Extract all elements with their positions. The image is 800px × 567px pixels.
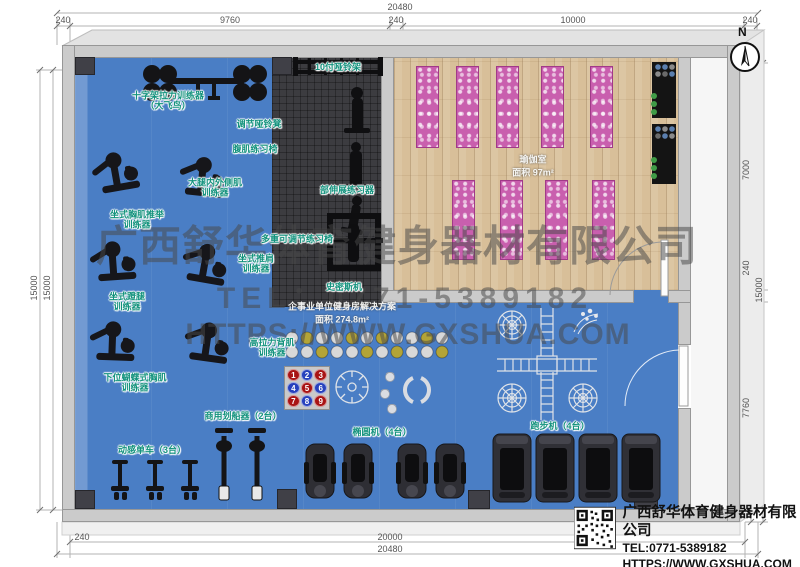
- dim-top-overall: 20480: [387, 2, 412, 12]
- label-lat-pulldown: 高拉力背肌 训练器: [249, 338, 294, 359]
- label-thigh-machine: 大腿内外侧肌 训练器: [188, 178, 242, 199]
- label-cross-cable: 十字架拉力训练器 （大飞鸟）: [132, 91, 204, 112]
- dim-right-overall: 15000: [754, 277, 764, 302]
- title-block: 广西舒华体育健身器材有限公司 TEL:0771-5389182 HTTPS://…: [574, 504, 798, 567]
- ball-4: 4: [287, 382, 300, 394]
- dim-bottom-inner: 20000: [377, 532, 402, 542]
- floor-plan-drawing: 20480 240 9760 240 10000 240 15000 15000…: [0, 0, 800, 567]
- qr-code-icon: [574, 504, 616, 552]
- watermark-company: 广西舒华体育健身器材有限公司: [96, 213, 698, 274]
- label-ab-bench: 腹肌练习椅: [232, 144, 277, 154]
- ball-5: 5: [301, 382, 314, 394]
- footer-company: 广西舒华体育健身器材有限公司: [623, 504, 799, 540]
- label-leg-press: 坐式蹬腿 训练器: [109, 292, 145, 313]
- yoga-mat: [416, 66, 439, 148]
- wall-left: [62, 45, 75, 522]
- column: [277, 489, 297, 509]
- column: [272, 57, 292, 75]
- dim-top-seg-3: 10000: [560, 15, 585, 25]
- ball-rack: 123456789: [284, 366, 330, 410]
- label-ellipticals: 椭圆机（4台）: [352, 427, 411, 437]
- column: [75, 57, 95, 75]
- plan-title-label: 企事业单位健身房解决方案 面积 274.8m²: [288, 300, 396, 325]
- label-chest-press: 坐式胸肌推举 训练器: [110, 210, 164, 231]
- ball-8: 8: [301, 395, 314, 407]
- dim-right-seg-0: 7000: [741, 160, 751, 180]
- ball-6: 6: [314, 382, 327, 394]
- label-adj-bench: 调节哑铃凳: [236, 119, 281, 129]
- label-shoulder-press: 坐式推肩 训练器: [238, 254, 274, 275]
- north-arrow-icon: [730, 42, 760, 72]
- wall-right-outer: [727, 45, 740, 522]
- dim-right-seg-2: 7760: [741, 398, 751, 418]
- yoga-room-label: 瑜伽室 面积 97m²: [512, 153, 554, 178]
- column: [75, 490, 95, 509]
- ball-9: 9: [314, 395, 327, 407]
- dim-left-inner: 15000: [42, 275, 52, 300]
- yoga-mat: [541, 66, 564, 148]
- yoga-mat: [496, 66, 519, 148]
- wall-top: [62, 45, 740, 58]
- label-smith-machine: 史密斯机: [326, 282, 362, 292]
- label-spin-bikes: 动感单车（3台）: [118, 445, 186, 455]
- dim-bottom-overall: 20480: [377, 544, 402, 554]
- yoga-mat: [456, 66, 479, 148]
- yoga-mat: [590, 66, 613, 148]
- ball-2: 2: [301, 369, 314, 381]
- dim-bottom-left: 240: [74, 532, 89, 542]
- label-multi-bench: 多重可调节练习椅: [261, 234, 333, 244]
- column: [468, 490, 490, 509]
- label-rowers: 商用划船器（2台）: [204, 411, 281, 421]
- label-dumbbell-rack: 10付哑铃架: [315, 62, 361, 72]
- dim-left-outer: 15000: [29, 275, 39, 300]
- dim-top-seg-4: 240: [742, 15, 757, 25]
- watermark-tel: TEL：0771-5389182: [217, 273, 593, 317]
- north-label: N: [738, 25, 747, 39]
- dim-top-seg-2: 240: [388, 15, 403, 25]
- ball-7: 7: [287, 395, 300, 407]
- label-treadmills: 跑步机（4台）: [530, 421, 589, 431]
- dim-top-seg-1: 9760: [220, 15, 240, 25]
- ball-1: 1: [287, 369, 300, 381]
- wall-yoga-bottom-right: [668, 290, 691, 303]
- label-back-extension: 部伸展练习器: [320, 185, 374, 195]
- ball-3: 3: [314, 369, 327, 381]
- label-pec-fly: 下位蝴蝶式胸肌 训练器: [103, 373, 166, 394]
- wall-corridor-lower: [678, 408, 691, 509]
- corridor-floor: [691, 57, 727, 509]
- footer-url: HTTPS://WWW.GXSHUA.COM: [623, 556, 799, 567]
- dim-right-seg-1: 240: [741, 260, 751, 275]
- footer-tel: TEL:0771-5389182: [623, 540, 799, 556]
- dim-top-seg-0: 240: [55, 15, 70, 25]
